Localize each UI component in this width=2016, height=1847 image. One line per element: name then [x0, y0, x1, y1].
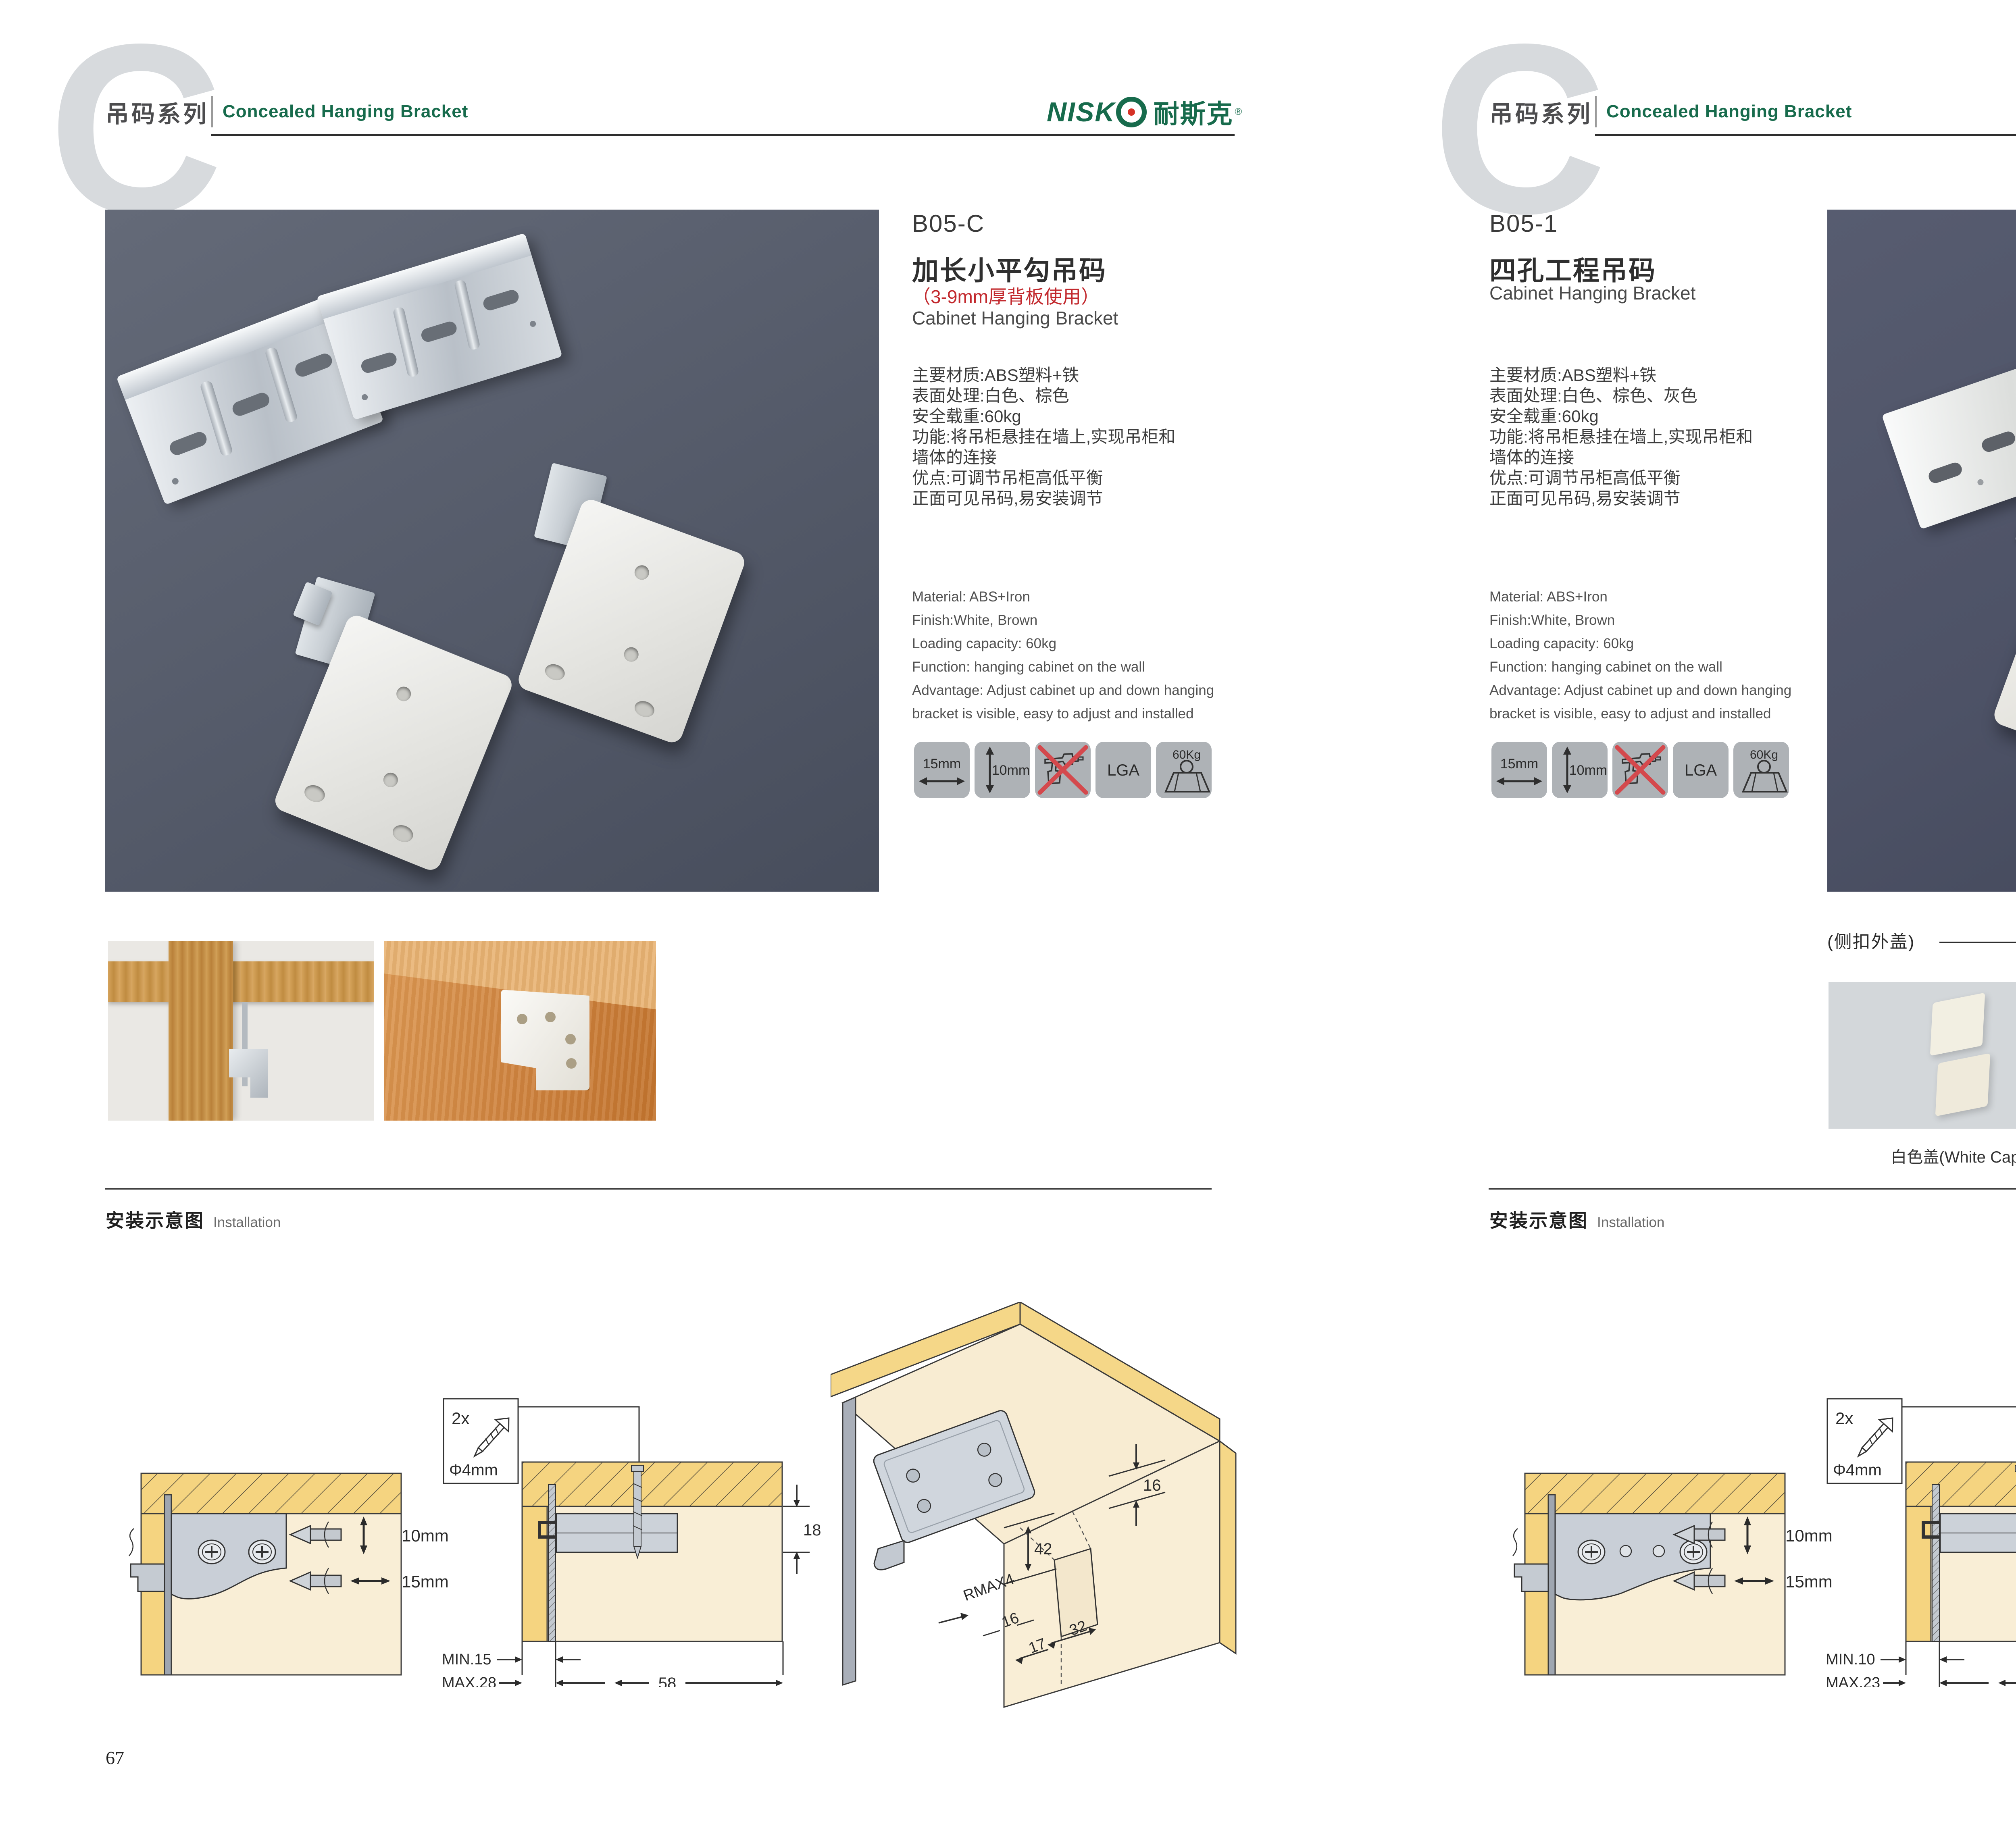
installation-rule	[1489, 1188, 2016, 1190]
installation-header: 安装示意图 Installation	[1489, 1206, 1664, 1233]
header-rule	[1595, 134, 2016, 136]
svg-text:15mm: 15mm	[1500, 756, 1538, 772]
svg-text:60Kg: 60Kg	[1173, 748, 1201, 761]
spec-line: Loading capacity: 60kg	[912, 632, 1214, 655]
installed-photo-wall-hook	[108, 941, 374, 1121]
screw-icon	[1578, 1540, 1605, 1564]
product-title-en: Cabinet Hanging Bracket	[1489, 282, 1695, 304]
spec-line: Material: ABS+Iron	[1489, 585, 1791, 609]
svg-text:Φ4mm: Φ4mm	[1833, 1461, 1882, 1479]
brand-latin: NISK	[1047, 96, 1115, 128]
cap-swatch-white	[1829, 982, 2016, 1129]
diagram-cabinet-section: 2x Φ4mm	[1819, 1393, 2016, 1687]
diagram-3d-corner: 16 42 RMAX4 16 32 17	[831, 1302, 1270, 1709]
svg-text:2x: 2x	[1835, 1409, 1853, 1428]
header-divider	[211, 96, 213, 127]
installation-title-en: Installation	[1597, 1215, 1664, 1231]
registered-mark: ®	[1235, 106, 1242, 118]
specs-zh: 主要材质:ABS塑料+铁 表面处理:白色、棕色 安全载重:60kg 功能:将吊柜…	[912, 365, 1175, 509]
spec-line: Material: ABS+Iron	[912, 585, 1214, 609]
screw-icon	[249, 1540, 275, 1564]
load-capacity-icon: 60Kg	[1733, 742, 1789, 798]
metal-hook	[229, 1049, 268, 1098]
spec-line: bracket is visible, easy to adjust and i…	[1489, 702, 1791, 726]
svg-text:Φ4mm: Φ4mm	[449, 1461, 498, 1479]
spec-line: 主要材质:ABS塑料+铁	[912, 365, 1175, 385]
series-title-en: Concealed Hanging Bracket	[223, 102, 468, 122]
screw-icon	[198, 1540, 225, 1564]
certification-icon: LGA	[1673, 742, 1729, 798]
spec-line: Advantage: Adjust cabinet up and down ha…	[912, 679, 1214, 702]
series-title-zh: 吊码系列	[1489, 95, 1593, 129]
spec-line: 墙体的连接	[912, 447, 1175, 468]
svg-text:MIN.10: MIN.10	[1826, 1651, 1875, 1668]
series-title-en: Concealed Hanging Bracket	[1606, 102, 1852, 122]
product-title-en: Cabinet Hanging Bracket	[912, 307, 1118, 329]
caps-section-title: (侧扣外盖)	[1827, 927, 1915, 953]
diagram-cabinet-section: 2x Φ4mm	[435, 1393, 827, 1687]
header-divider	[1595, 96, 1597, 127]
height-range-icon: 10mm	[1552, 742, 1608, 798]
svg-text:MAX.23: MAX.23	[1826, 1674, 1880, 1687]
installation-title-en: Installation	[213, 1215, 281, 1231]
installation-title-zh: 安装示意图	[1489, 1206, 1588, 1233]
svg-text:16: 16	[1143, 1477, 1161, 1494]
svg-text:18: 18	[803, 1521, 821, 1539]
feature-icon-row: 15mm 10mm LGA	[1491, 742, 1789, 798]
svg-text:10mm: 10mm	[1569, 763, 1607, 778]
certification-icon: LGA	[1095, 742, 1151, 798]
white-wall-plate	[1882, 349, 2016, 529]
brand-zh: 耐斯克	[1153, 94, 1233, 131]
catalog-spread: C 吊码系列 Concealed Hanging Bracket NISK 耐斯…	[0, 0, 2016, 1847]
spec-line: 墙体的连接	[1489, 447, 1753, 468]
svg-text:10mm: 10mm	[992, 763, 1030, 778]
svg-text:2x: 2x	[452, 1409, 469, 1428]
cap-label: 白色盖(White Cap)	[1829, 1144, 2016, 1167]
svg-text:42: 42	[1034, 1540, 1052, 1558]
spec-line: Finish:White, Brown	[1489, 609, 1791, 632]
spec-line: bracket is visible, easy to adjust and i…	[912, 702, 1214, 726]
installation-header: 安装示意图 Installation	[106, 1206, 281, 1233]
width-range-icon: 15mm	[914, 742, 970, 798]
spec-line: 安全载重:60kg	[1489, 406, 1753, 426]
product-photo-b05c	[105, 210, 879, 892]
svg-text:MAX.28: MAX.28	[442, 1674, 496, 1687]
product-code: B05-1	[1489, 210, 1558, 237]
spec-line: 优点:可调节吊柜高低平衡	[912, 468, 1175, 488]
spec-line: 功能:将吊柜悬挂在墙上,实现吊柜和	[912, 426, 1175, 447]
no-drill-icon	[1035, 742, 1091, 798]
brand-logo: NISK 耐斯克 ®	[1047, 94, 1242, 131]
specs-zh: 主要材质:ABS塑料+铁 表面处理:白色、棕色、灰色 安全载重:60kg 功能:…	[1489, 365, 1753, 509]
product-photo-b051	[1827, 210, 2016, 892]
metal-wall-plate	[317, 233, 562, 420]
load-capacity-icon: 60Kg	[1156, 742, 1212, 798]
width-range-icon: 15mm	[1491, 742, 1547, 798]
spec-line: 表面处理:白色、棕色	[912, 385, 1175, 406]
spec-line: 安全载重:60kg	[912, 406, 1175, 426]
product-code: B05-C	[912, 210, 985, 237]
spec-line: Advantage: Adjust cabinet up and down ha…	[1489, 679, 1791, 702]
spec-line: 优点:可调节吊柜高低平衡	[1489, 468, 1753, 488]
header-rule	[211, 134, 1235, 136]
height-range-icon: 10mm	[975, 742, 1030, 798]
svg-text:60Kg: 60Kg	[1750, 748, 1778, 761]
brand-o-icon	[1116, 97, 1147, 127]
installation-title-zh: 安装示意图	[106, 1206, 204, 1233]
spec-line: Loading capacity: 60kg	[1489, 632, 1791, 655]
feature-icon-row: 15mm 10mm LGA	[914, 742, 1212, 798]
spec-line: 表面处理:白色、棕色、灰色	[1489, 385, 1753, 406]
svg-text:15mm: 15mm	[923, 756, 961, 772]
spec-line: 正面可见吊码,易安装调节	[912, 488, 1175, 509]
spec-line: Function: hanging cabinet on the wall	[1489, 655, 1791, 679]
spec-line: 正面可见吊码,易安装调节	[1489, 488, 1753, 509]
spec-line: Finish:White, Brown	[912, 609, 1214, 632]
installation-rule	[105, 1188, 1212, 1190]
spec-line: 主要材质:ABS塑料+铁	[1489, 365, 1753, 385]
installed-photo-cabinet-bracket	[384, 941, 656, 1121]
svg-text:LGA: LGA	[1107, 761, 1139, 779]
svg-text:MIN.15: MIN.15	[442, 1651, 491, 1668]
specs-en: Material: ABS+Iron Finish:White, Brown L…	[912, 585, 1214, 726]
svg-text:58: 58	[658, 1674, 677, 1687]
svg-text:LGA: LGA	[1685, 761, 1717, 779]
spec-line: Function: hanging cabinet on the wall	[912, 655, 1214, 679]
spec-line: 功能:将吊柜悬挂在墙上,实现吊柜和	[1489, 426, 1753, 447]
specs-en: Material: ABS+Iron Finish:White, Brown L…	[1489, 585, 1791, 726]
product-subtitle-red: （3-9mm厚背板使用）	[912, 282, 1100, 309]
series-title-zh: 吊码系列	[106, 95, 209, 129]
page-number: 67	[106, 1747, 124, 1768]
caps-rule	[1939, 942, 2016, 943]
no-drill-icon	[1612, 742, 1668, 798]
